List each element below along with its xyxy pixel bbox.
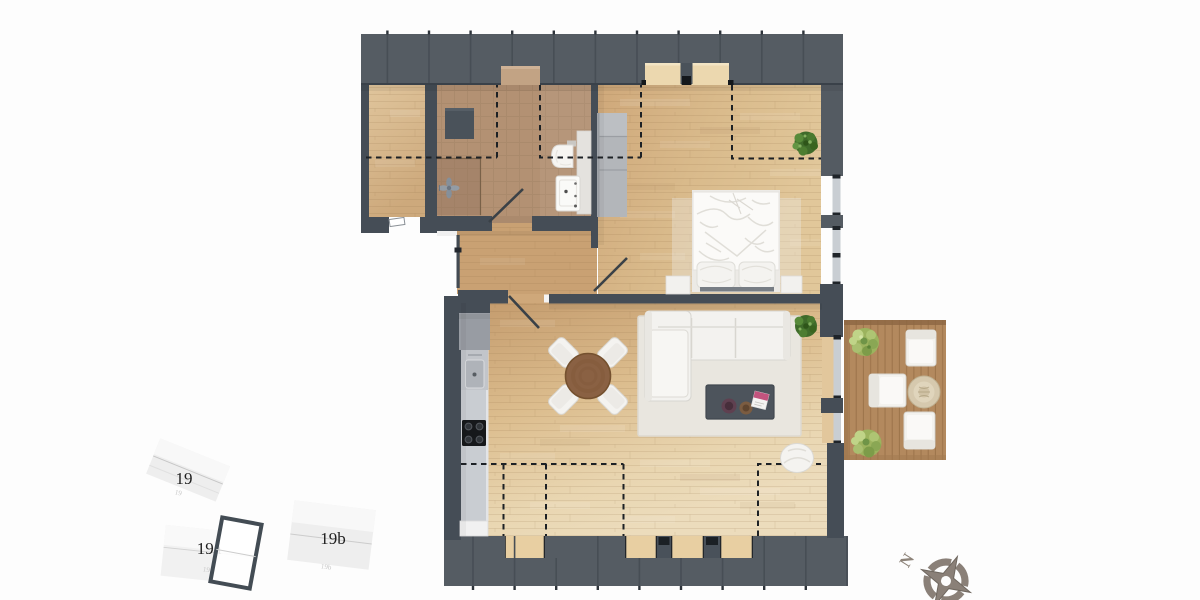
svg-text:19b: 19b bbox=[320, 529, 346, 548]
svg-text:19: 19 bbox=[176, 469, 193, 488]
svg-text:19b: 19b bbox=[320, 562, 332, 571]
